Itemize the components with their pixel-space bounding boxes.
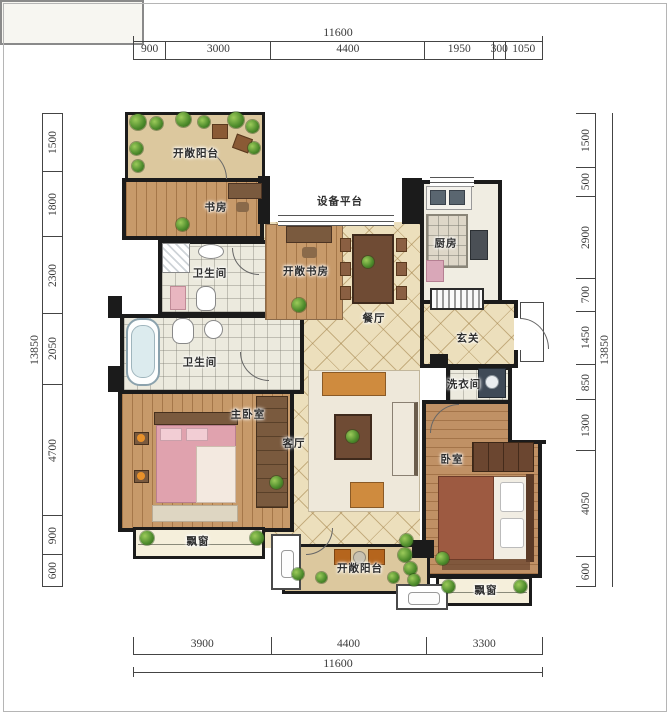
balcony-side-unit	[271, 534, 301, 590]
dimension-segment: 1300	[576, 399, 595, 449]
plant	[398, 548, 412, 562]
dining-chair	[340, 286, 351, 300]
dimension-segment: 4400	[270, 42, 424, 59]
label-laundry: 洗衣间	[447, 377, 482, 392]
label-foyer: 玄关	[457, 331, 480, 346]
dining-chair	[396, 238, 407, 252]
plant	[400, 534, 413, 547]
dim-bottom-total-label: 11600	[323, 656, 353, 670]
washbasin-upper	[198, 244, 224, 259]
master-bed-blanket	[196, 446, 236, 503]
plant	[250, 531, 264, 545]
washbasin-lower	[204, 320, 223, 339]
wall-chunk	[402, 178, 422, 224]
plant	[514, 580, 527, 593]
room-equipment-platform	[0, 0, 144, 45]
dimension-segment: 600	[43, 554, 62, 587]
bath-mat	[170, 286, 186, 310]
label-study: 书房	[205, 200, 228, 215]
label-bath-upper: 卫生间	[193, 266, 228, 281]
dimension-segment: 4050	[576, 450, 595, 556]
dimension-segment: 1500	[576, 113, 595, 167]
bedroom-pillow	[500, 482, 524, 512]
plant	[176, 112, 191, 127]
dimension-segment: 1050	[505, 42, 543, 59]
living-bench	[322, 372, 386, 396]
plant	[150, 117, 163, 130]
wall-chunk	[108, 296, 122, 318]
plant	[292, 298, 306, 312]
label-equipment: 设备平台	[317, 194, 363, 209]
plant	[228, 112, 244, 128]
dimension-segment: 2300	[43, 236, 62, 313]
plant	[404, 562, 417, 575]
ac-platform-inner	[408, 592, 440, 605]
dimension-segment: 4400	[271, 637, 426, 654]
label-bedroom: 卧室	[441, 452, 464, 467]
wall-chunk	[108, 366, 122, 392]
dimension-left-total: 13850	[26, 113, 43, 587]
dimension-segment: 300	[493, 42, 504, 59]
lamp	[137, 434, 145, 442]
label-bay-window-right: 飘窗	[475, 583, 498, 598]
dimension-segment: 850	[576, 364, 595, 399]
master-bed-pillow	[160, 428, 182, 441]
shower-corner	[162, 243, 190, 273]
master-bed-pillow	[186, 428, 208, 441]
plant	[248, 142, 260, 154]
dimension-segment: 1800	[43, 171, 62, 236]
dimension-segment: 600	[576, 556, 595, 587]
plant	[132, 160, 144, 172]
shoe-cabinet	[430, 288, 484, 310]
dimension-segment: 700	[576, 278, 595, 310]
plant	[388, 572, 399, 583]
plant	[246, 120, 259, 133]
bedroom-bed-headboard	[526, 474, 534, 562]
plant	[270, 476, 283, 489]
dimension-segment: 1500	[43, 113, 62, 171]
plant	[292, 568, 304, 580]
living-sofa	[392, 402, 418, 476]
dimension-left-segments: 15001800230020504700900600	[43, 113, 63, 587]
dimension-segment: 1450	[576, 311, 595, 364]
dim-right-total-label: 13850	[597, 335, 612, 365]
bedroom-wardrobe	[472, 442, 534, 472]
dimension-segment: 500	[576, 167, 595, 195]
dimension-segment: 2050	[43, 313, 62, 384]
dimension-segment: 900	[43, 515, 62, 554]
master-rug	[152, 505, 238, 522]
wall-chunk	[430, 354, 448, 368]
dimension-bottom-segments: 390044003300	[133, 637, 543, 655]
open-study-desk	[286, 226, 332, 243]
dining-chair	[340, 238, 351, 252]
kitchen-stove	[470, 230, 488, 260]
plant	[346, 430, 359, 443]
plant	[130, 114, 146, 130]
dimension-top: 11600 9003000440019503001050	[133, 24, 543, 60]
study-desk	[228, 183, 262, 199]
plant	[176, 218, 189, 231]
dimension-right: 15005002900700145085013004050600 13850	[576, 113, 613, 587]
kitchen-sink-basin	[449, 190, 465, 205]
window-dining	[278, 215, 394, 226]
label-open-study: 开敞书房	[283, 264, 329, 279]
dimension-top-segments: 9003000440019503001050	[133, 42, 543, 60]
plant	[130, 142, 143, 155]
dining-chair	[340, 262, 351, 276]
dimension-bottom: 390044003300 11600	[133, 637, 543, 673]
study-chair	[236, 202, 249, 212]
kitchen-cart	[426, 260, 444, 282]
toilet-lower	[172, 318, 194, 344]
dimension-segment: 1950	[424, 42, 493, 59]
label-balcony-top: 开敞阳台	[173, 146, 219, 161]
dimension-segment: 4700	[43, 384, 62, 515]
label-master-bedroom: 主卧室	[231, 407, 266, 422]
bedroom-pillow	[500, 518, 524, 548]
bedroom-bed-blanket	[438, 476, 494, 560]
dim-left-total-label: 13850	[27, 335, 42, 365]
dining-chair	[396, 262, 407, 276]
plant	[316, 572, 327, 583]
label-bath-lower: 卫生间	[183, 355, 218, 370]
dimension-segment: 3000	[165, 42, 270, 59]
dimension-right-total: 13850	[596, 113, 613, 587]
dimension-segment: 3900	[133, 637, 271, 654]
plant	[442, 580, 455, 593]
floor-plan-canvas: 11600 9003000440019503001050 39004400330…	[0, 0, 670, 715]
plant	[362, 256, 374, 268]
plant	[198, 116, 210, 128]
bathtub-inner	[131, 325, 155, 378]
label-dining: 餐厅	[363, 311, 386, 326]
dimension-top-total: 11600	[133, 24, 543, 42]
dimension-bottom-total: 11600	[133, 655, 543, 673]
washing-machine-drum	[485, 375, 499, 389]
label-kitchen: 厨房	[435, 236, 458, 251]
kitchen-sink-basin	[430, 190, 446, 205]
bedroom-notch	[508, 396, 546, 444]
label-living: 客厅	[283, 436, 306, 451]
dimension-segment: 2900	[576, 196, 595, 279]
plant	[408, 574, 420, 586]
dimension-right-segments: 15005002900700145085013004050600	[576, 113, 596, 587]
dining-chair	[396, 286, 407, 300]
dimension-segment: 900	[133, 42, 165, 59]
label-balcony-bottom: 开敞阳台	[337, 561, 383, 576]
living-armchair	[350, 482, 384, 508]
plant	[436, 552, 449, 565]
lamp	[137, 472, 145, 480]
label-bay-window-left: 飘窗	[187, 534, 210, 549]
bedroom-rug	[442, 560, 530, 570]
balcony-top-stool	[212, 124, 228, 139]
dimension-segment: 3300	[426, 637, 544, 654]
open-study-chair	[302, 247, 317, 258]
master-bed-headboard	[154, 412, 238, 425]
wall-chunk	[412, 540, 434, 558]
plant	[140, 531, 154, 545]
toilet-upper	[196, 286, 216, 311]
ac-platform	[396, 584, 448, 610]
dimension-left: 13850 15001800230020504700900600	[26, 113, 63, 587]
dim-top-total-label: 11600	[323, 25, 353, 39]
dining-table	[352, 234, 394, 304]
